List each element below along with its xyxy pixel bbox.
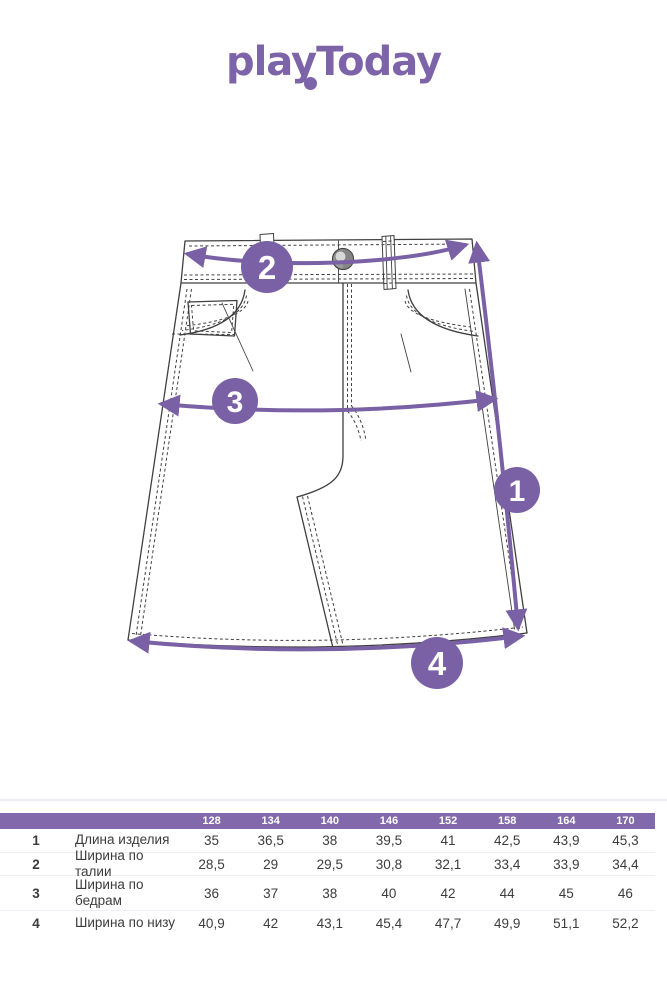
size-value: 42,5: [478, 833, 537, 848]
size-value: 28,5: [182, 857, 241, 872]
measurement-arrow-4: [132, 636, 521, 649]
svg-text:2: 2: [258, 249, 276, 286]
size-value: 46: [596, 886, 655, 901]
jeans-button-icon: [333, 249, 354, 270]
skirt-body: [128, 234, 527, 649]
size-value: 38: [300, 886, 359, 901]
measurement-arrow-1: [477, 245, 518, 627]
size-value: 42: [241, 916, 300, 931]
row-number: 2: [0, 857, 58, 872]
size-value: 45,4: [359, 916, 418, 931]
brand-header: playToday: [0, 40, 667, 84]
size-table-header: 128 134 140 146 152 158 164 170: [0, 813, 655, 829]
size-value: 39,5: [359, 833, 418, 848]
size-value: 30,8: [359, 857, 418, 872]
size-value: 44: [478, 886, 537, 901]
size-value: 35: [182, 833, 241, 848]
size-value: 40,9: [182, 916, 241, 931]
belt-loop-right: [382, 236, 396, 290]
size-value: 29,5: [300, 857, 359, 872]
size-value: 37: [241, 886, 300, 901]
size-column-header: 170: [596, 815, 655, 827]
svg-text:4: 4: [428, 645, 447, 682]
row-number: 3: [0, 886, 58, 901]
side-seam-left: [128, 283, 181, 640]
measurement-badge-1: 1: [494, 467, 540, 513]
size-column-header: 146: [359, 815, 418, 827]
size-column-header: 128: [182, 815, 241, 827]
measurement-label: Ширина по низу: [58, 915, 182, 931]
size-value: 42: [419, 886, 478, 901]
row-number: 4: [0, 916, 58, 931]
size-value: 45: [537, 886, 596, 901]
measurement-badge-4: 4: [411, 637, 463, 689]
measurement-label: Ширина по талии: [58, 848, 182, 881]
size-chart-page: playToday: [0, 0, 667, 1000]
svg-text:3: 3: [227, 386, 244, 419]
table-row: 4 Ширина по низу 40,9 42 43,1 45,4 47,7 …: [0, 911, 655, 935]
skirt-technical-drawing: 2 3 1 4: [100, 200, 570, 700]
size-table: 128 134 140 146 152 158 164 170 1 Длина …: [0, 813, 667, 935]
size-column-header: 140: [300, 815, 359, 827]
size-value: 43,9: [537, 833, 596, 848]
measurement-arrow-3: [162, 399, 494, 410]
brand-logo-text: playToday: [226, 39, 441, 85]
size-value: 45,3: [596, 833, 655, 848]
front-panel-edge: [297, 497, 333, 648]
size-value: 34,4: [596, 857, 655, 872]
size-column-header: 164: [537, 815, 596, 827]
measurement-badge-2: 2: [241, 241, 293, 293]
table-row: 2 Ширина по талии 28,5 29 29,5 30,8 32,1…: [0, 853, 655, 876]
row-number: 1: [0, 833, 58, 848]
size-column-header: 152: [419, 815, 478, 827]
size-value: 38: [300, 833, 359, 848]
measurement-label: Ширина по бедрам: [58, 877, 182, 910]
brand-logo: playToday: [226, 40, 441, 84]
size-value: 32,1: [419, 857, 478, 872]
size-column-header: 158: [478, 815, 537, 827]
center-front-seam: [297, 283, 343, 497]
size-value: 41: [419, 833, 478, 848]
fold-line-right: [401, 334, 411, 372]
size-value: 29: [241, 857, 300, 872]
svg-text:1: 1: [509, 475, 526, 508]
pocket-right: [408, 290, 478, 336]
size-column-header: 134: [241, 815, 300, 827]
size-value: 36: [182, 886, 241, 901]
size-value: 43,1: [300, 916, 359, 931]
size-value: 49,9: [478, 916, 537, 931]
measurement-badge-3: 3: [212, 378, 258, 424]
size-value: 51,1: [537, 916, 596, 931]
fold-line-left: [222, 303, 253, 371]
table-row: 3 Ширина по бедрам 36 37 38 40 42 44 45 …: [0, 876, 655, 911]
size-value: 40: [359, 886, 418, 901]
size-value: 33,4: [478, 857, 537, 872]
logo-dot-icon: [304, 77, 317, 90]
size-value: 36,5: [241, 833, 300, 848]
size-value: 52,2: [596, 916, 655, 931]
table-top-divider: [0, 799, 667, 801]
size-value: 33,9: [537, 857, 596, 872]
size-value: 47,7: [419, 916, 478, 931]
measurement-label: Длина изделия: [58, 832, 182, 848]
